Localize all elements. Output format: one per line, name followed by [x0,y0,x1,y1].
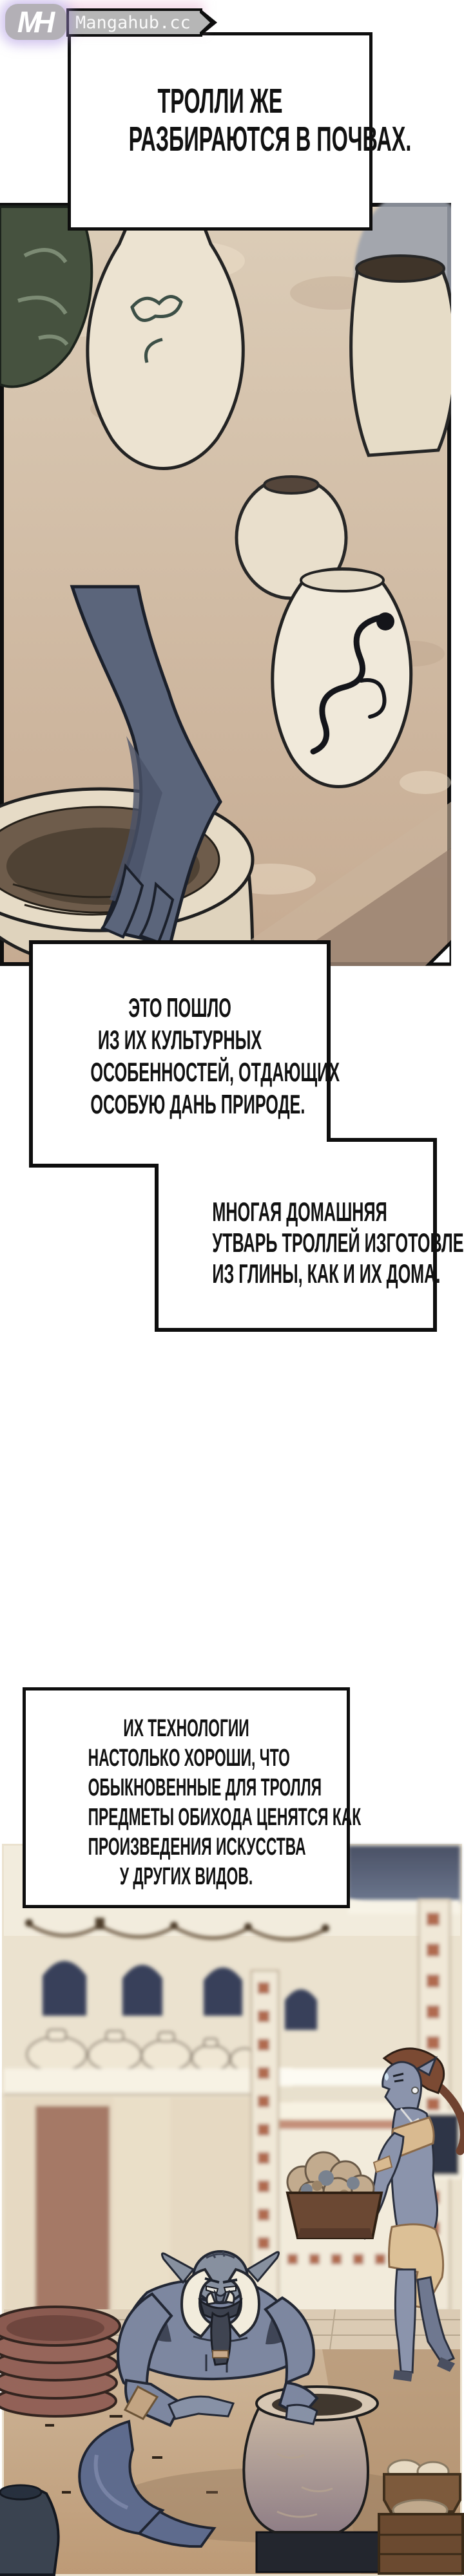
crates [379,2460,463,2573]
caption-line: ПРОИЗВЕДЕНИЯ ИСКУССТВА [88,1832,285,1862]
caption-line: НАСТОЛЬКО ХОРОШИ, ЧТО [88,1743,285,1773]
caption-line: ОСОБУЮ ДАНЬ ПРИРОДЕ. [90,1088,269,1121]
panel-pottery-closeup [0,203,451,966]
caption-3-text: МНОГАЯ ДОМАШНЯЯ УТВАРЬ ТРОЛЛЕЙ ИЗГОТОВЛЕ… [212,1197,379,1289]
beard-band [213,2351,228,2358]
red-column [35,2106,110,2312]
caption-line: РАЗБИРАЮТСЯ В ПОЧВАХ. [129,120,312,158]
site-logo-text: Mangahub.cc [75,13,191,33]
caption-line: ТРОЛЛИ ЖЕ [129,82,312,120]
caption-line: УТВАРЬ ТРОЛЛЕЙ ИЗГОТОВЛЕНА [212,1227,379,1258]
comic-page: ТРОЛЛИ ЖЕ РАЗБИРАЮТСЯ В ПОЧВАХ. ЭТО ПОШЛ… [0,0,464,2576]
tall-vase [351,256,451,455]
dark-jar [0,2485,59,2575]
vase-mouth [356,256,444,281]
caption-line: ИЗ ИХ КУЛЬТУРНЫХ [90,1024,269,1056]
flourish-vase [273,569,411,787]
panel-pottery-art [0,203,451,966]
caption-line: ЭТО ПОШЛО [90,992,269,1024]
caption-line: У ДРУГИХ ВИДОВ. [88,1862,285,1891]
earring [412,2087,418,2094]
caption-line: ИЗ ГЛИНЫ, КАК И ИХ ДОМА. [212,1258,379,1289]
panel-workshop-art [0,1842,464,2576]
caption-2-text: ЭТО ПОШЛО ИЗ ИХ КУЛЬТУРНЫХ ОСОБЕННОСТЕЙ,… [90,992,269,1121]
caption-line: ИХ ТЕХНОЛОГИИ [88,1714,285,1743]
caption-line: ПРЕДМЕТЫ ОБИХОДА ЦЕНЯТСЯ КАК [88,1803,285,1832]
plate-stack [0,2307,120,2416]
caption-line: ОСОБЕННОСТЕЙ, ОТДАЮЩИХ [90,1056,269,1088]
caption-line: МНОГАЯ ДОМАШНЯЯ [212,1197,379,1227]
site-logo-badge[interactable]: MH [5,4,66,40]
site-logo-monogram: MH [17,5,55,39]
caption-4-text: ИХ ТЕХНОЛОГИИ НАСТОЛЬКО ХОРОШИ, ЧТО ОБЫК… [88,1714,285,1891]
caption-line: ОБЫКНОВЕННЫЕ ДЛЯ ТРОЛЛЯ [88,1773,285,1803]
caption-1-text: ТРОЛЛИ ЖЕ РАЗБИРАЮТСЯ В ПОЧВАХ. [129,82,312,158]
panel-workshop-scene [0,1842,464,2576]
pot-pedestal [256,2532,392,2572]
site-logo-banner[interactable]: Mangahub.cc [66,8,202,37]
